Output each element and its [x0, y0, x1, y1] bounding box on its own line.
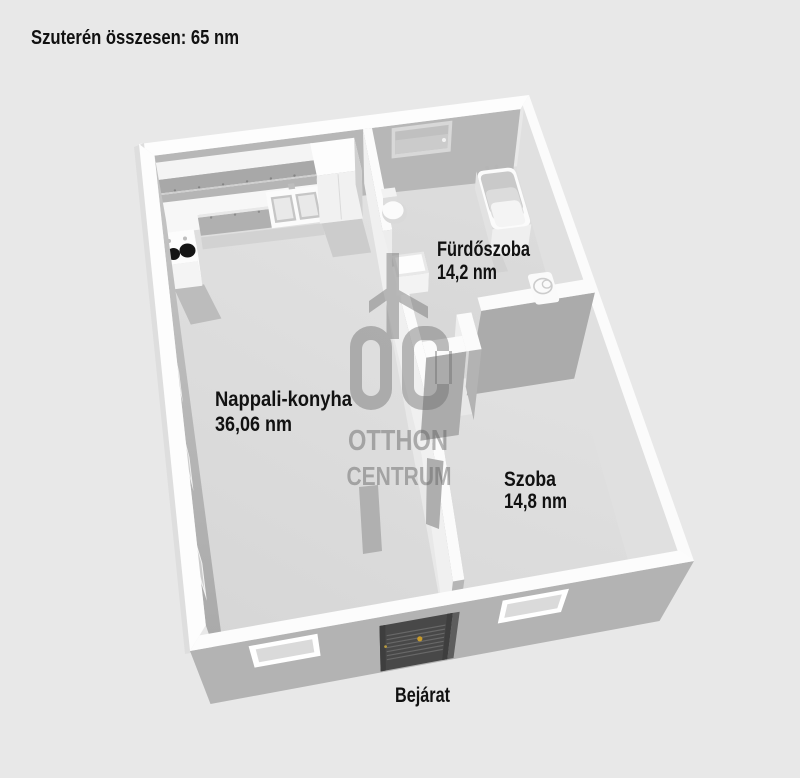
- svg-text:Szoba: Szoba: [504, 468, 556, 491]
- svg-text:14,8 nm: 14,8 nm: [504, 490, 567, 513]
- svg-text:Bejárat: Bejárat: [395, 684, 450, 707]
- svg-text:Fürdőszoba: Fürdőszoba: [437, 238, 530, 261]
- svg-text:Nappali-konyha: Nappali-konyha: [215, 388, 352, 411]
- svg-text:Szuterén összesen: 65 nm: Szuterén összesen: 65 nm: [31, 26, 239, 49]
- svg-text:OTTHON: OTTHON: [348, 425, 448, 457]
- svg-text:14,2 nm: 14,2 nm: [437, 261, 497, 284]
- svg-text:CENTRUM: CENTRUM: [347, 461, 452, 491]
- svg-text:36,06 nm: 36,06 nm: [215, 413, 292, 436]
